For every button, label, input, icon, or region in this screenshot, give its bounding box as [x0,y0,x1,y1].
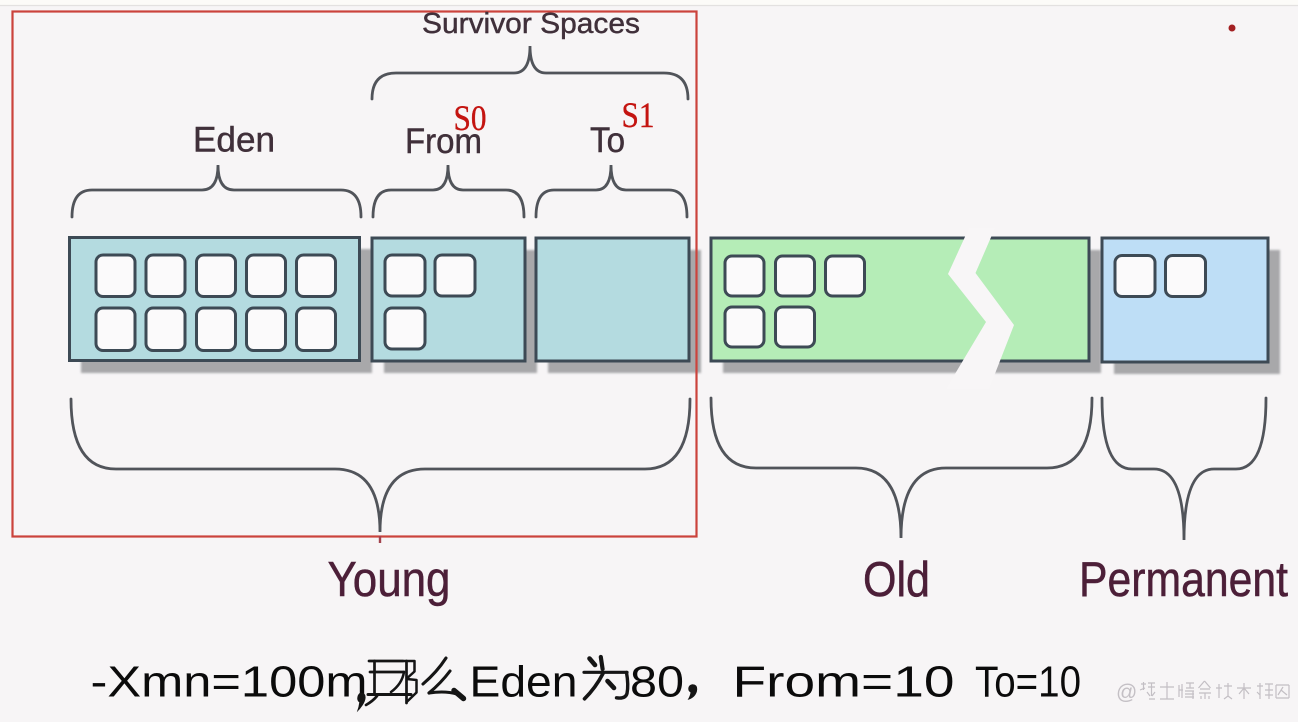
svg-text:To=10: To=10 [975,658,1081,707]
svg-text:Survivor Spaces: Survivor Spaces [422,8,640,40]
svg-text:Young: Young [328,553,451,607]
svg-text:Permanent: Permanent [1079,553,1288,607]
svg-text:S0: S0 [454,98,487,138]
svg-text:From=10: From=10 [733,658,955,707]
svg-text:-Xmn=100m: -Xmn=100m [91,658,368,707]
svg-text:Old: Old [863,553,930,607]
svg-text:Eden: Eden [193,121,275,160]
svg-text:Eden: Eden [470,658,578,707]
svg-text:80: 80 [630,658,684,707]
svg-text:S1: S1 [622,95,655,135]
svg-text:@: @ [1116,681,1137,704]
svg-text:To: To [590,121,625,160]
